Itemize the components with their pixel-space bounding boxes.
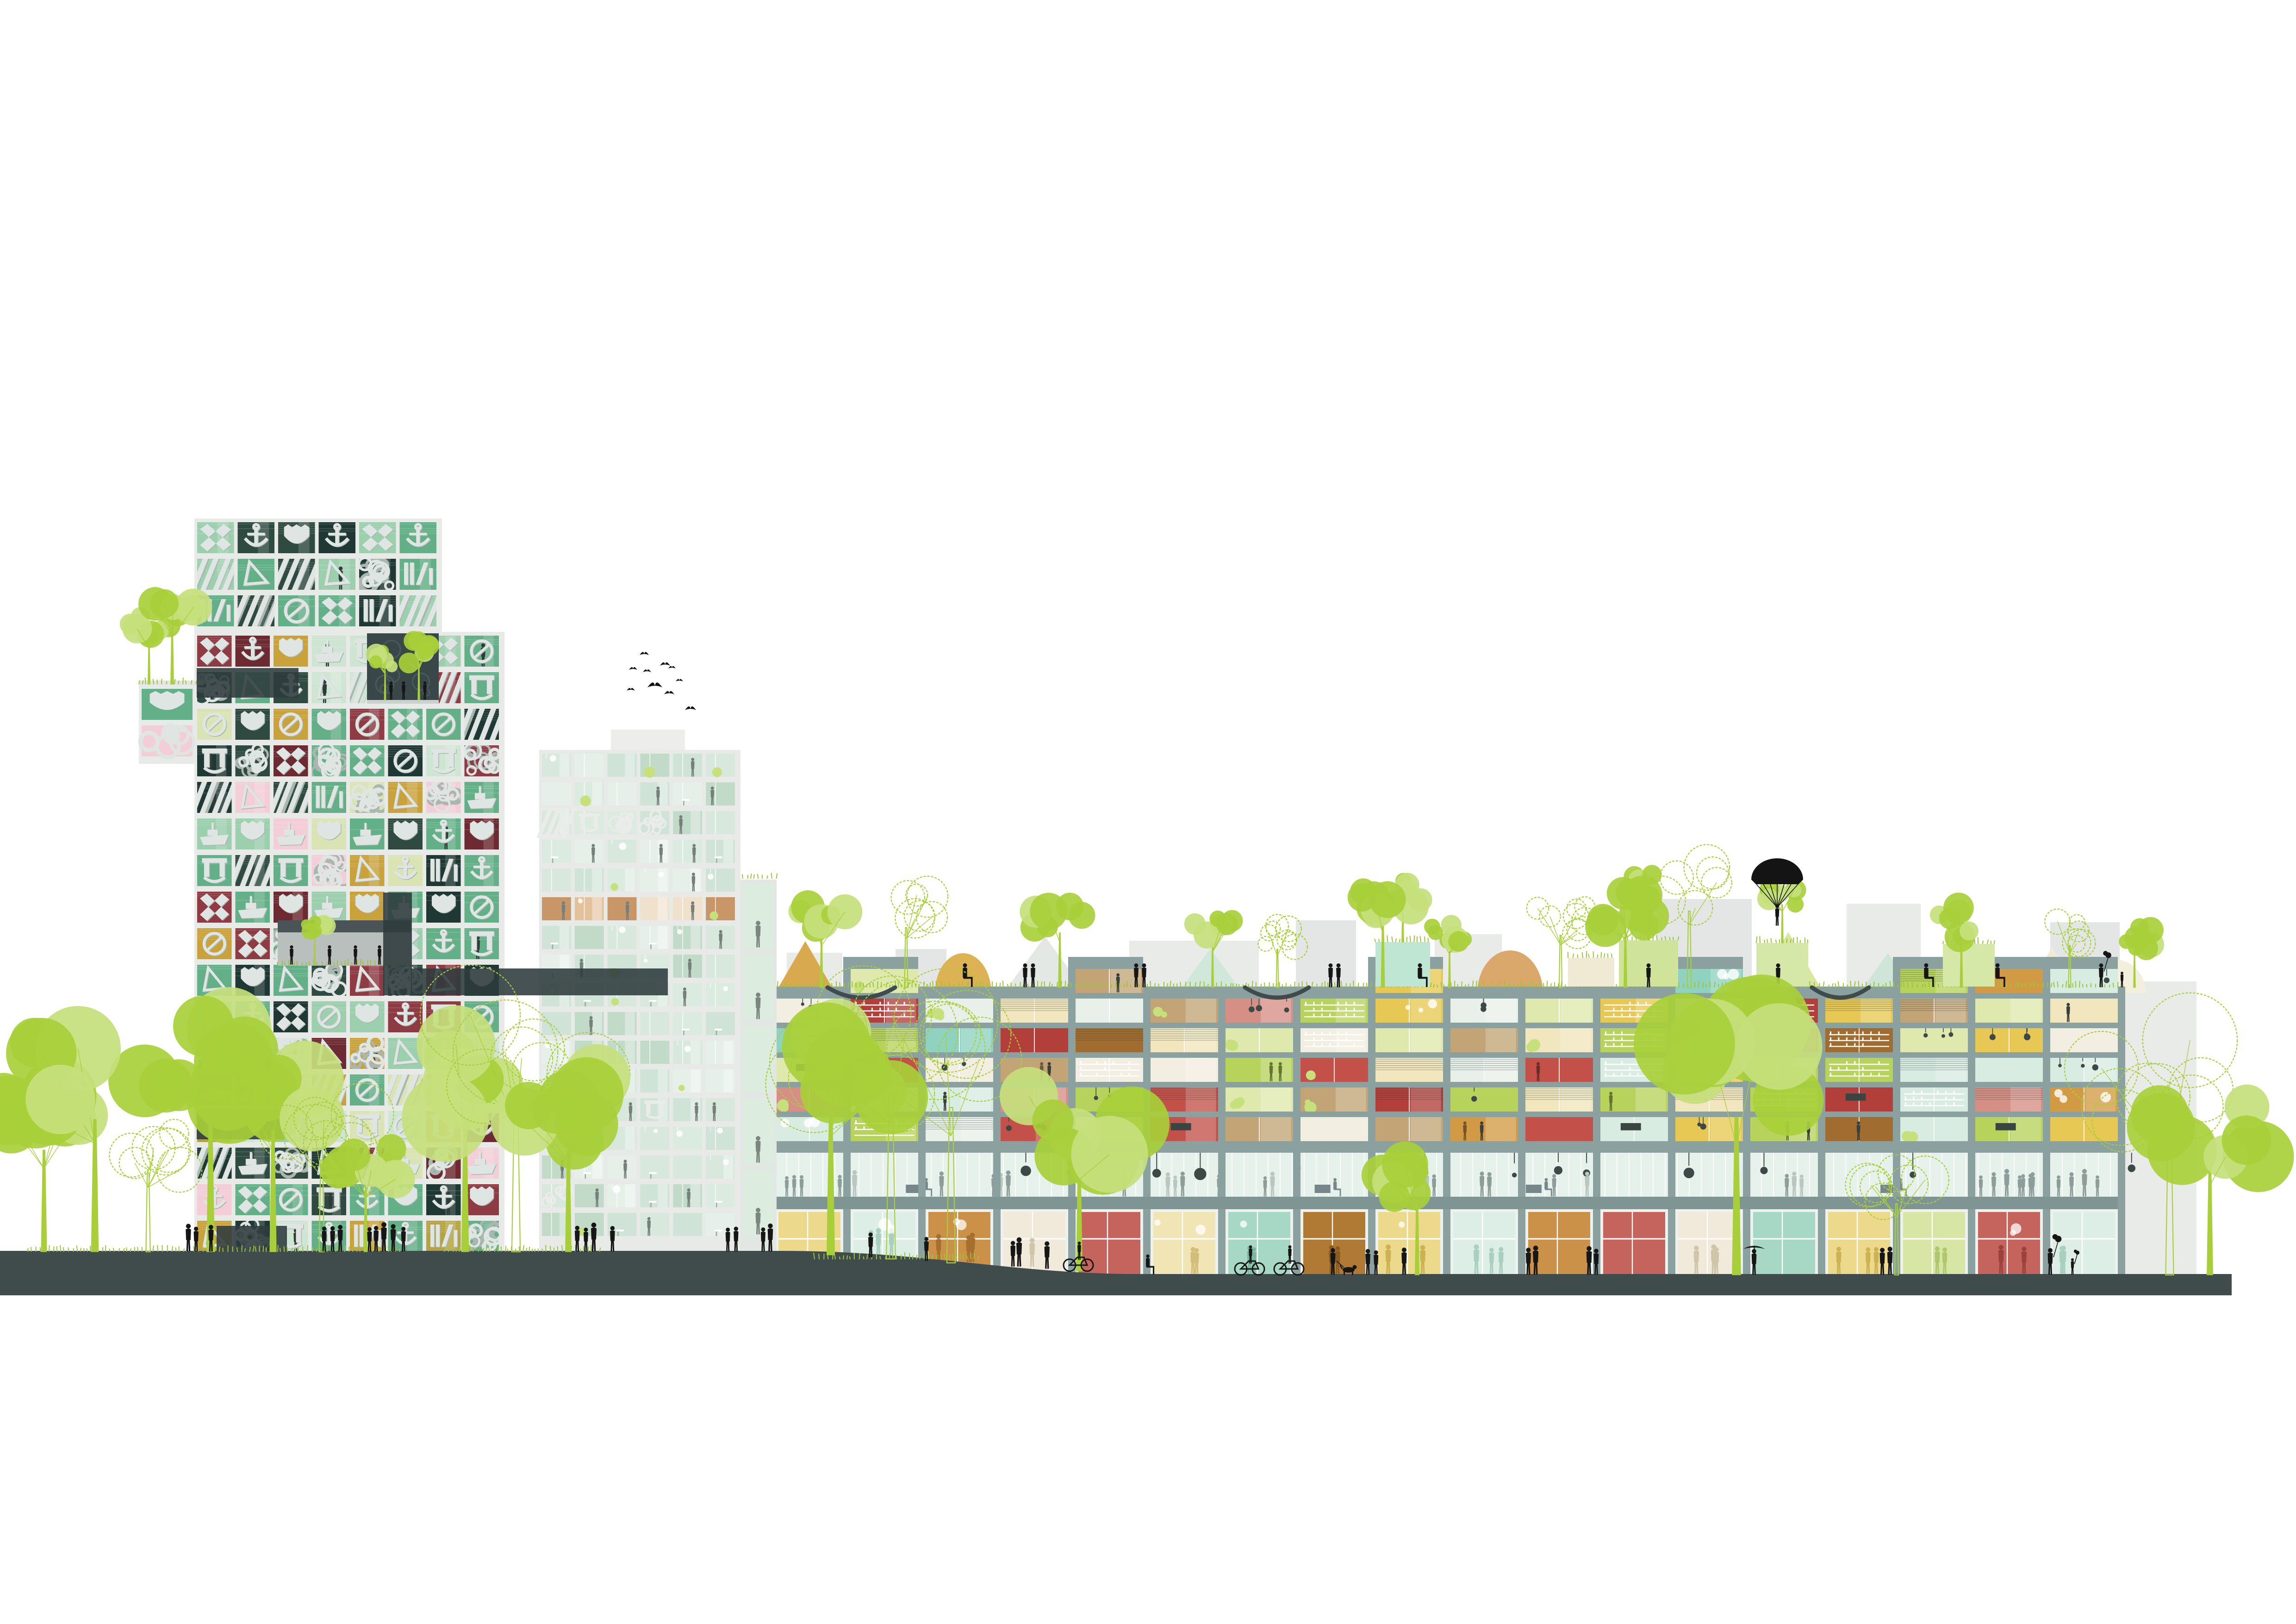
- tower-facade-cell: [274, 1148, 311, 1179]
- tower-facade-cell: [350, 1036, 386, 1071]
- bird-icon: [685, 706, 696, 710]
- tower-facade-cell: [278, 595, 315, 626]
- tower-facade-cell: [312, 636, 347, 667]
- tower-facade-cell: [197, 709, 232, 740]
- tower-facade-cell: [312, 818, 347, 849]
- bird-icon: [643, 669, 651, 672]
- tower-facade-cell: [312, 782, 347, 813]
- tower-dark-terrace-band: [411, 968, 668, 995]
- tower-facade-cell: [388, 745, 423, 776]
- tower-facade-cell: [236, 1148, 270, 1179]
- low-rise-block: [768, 957, 2135, 1282]
- bird-icon: [668, 666, 676, 668]
- bird-icon: [627, 688, 635, 691]
- tower-facade-cell: [388, 818, 423, 849]
- tower-facade-cell: [236, 636, 270, 667]
- tower-facade-cell: [197, 1184, 232, 1215]
- tower-facade-cell: [274, 745, 308, 776]
- tower-facade-cell: [465, 672, 499, 703]
- tower-facade-cell: [236, 709, 270, 740]
- tower-facade-cell: [274, 818, 308, 849]
- tower-facade-cell: [312, 853, 351, 888]
- tower-facade-cell: [426, 745, 461, 776]
- tower-facade-cell: [465, 818, 499, 849]
- tower-facade-cell: [350, 892, 385, 923]
- tower-facade-cell: [465, 892, 499, 923]
- tower-facade-cell: [426, 928, 461, 959]
- tower-facade-cell: [319, 522, 356, 553]
- tower-facade-cell: [236, 1184, 270, 1215]
- tower-facade-cell: [350, 709, 385, 740]
- tower-facade-cell: [312, 743, 349, 779]
- tower-facade-cell: [359, 595, 396, 626]
- tower-facade-cell: [197, 928, 232, 959]
- bird-icon: [664, 691, 674, 694]
- rooftop-plant-room: [611, 730, 685, 751]
- tower-facade-cell: [465, 855, 499, 886]
- bird-icon: [660, 662, 670, 666]
- tower-facade-cell: [465, 1184, 499, 1215]
- bird-icon: [640, 652, 649, 655]
- tower-facade-cell: [236, 928, 270, 959]
- tower-facade-cell: [465, 743, 499, 776]
- tower-facade-cell: [350, 1001, 385, 1032]
- tower-facade-cell: [236, 744, 270, 777]
- tower-facade-cell: [319, 559, 356, 590]
- tower-facade-cell: [274, 892, 308, 923]
- tower-facade-cell: [350, 782, 387, 817]
- tower-facade-cell: [278, 522, 315, 553]
- tower-facade-cell: [465, 782, 499, 813]
- tower-facade-cell: [238, 522, 275, 553]
- tower-dark-terrace-band: [197, 668, 299, 698]
- tower-facade-cell: [197, 522, 234, 553]
- tower-facade-cell: [350, 1074, 385, 1106]
- tower-facade-cell: [197, 636, 232, 667]
- tower-facade-cell: [388, 1001, 423, 1032]
- tower-facade-cell: [274, 636, 308, 667]
- tower-dark-terrace-band: [383, 893, 412, 995]
- tower-facade-cell: [236, 818, 270, 849]
- tower-facade-cell: [425, 779, 462, 813]
- tower-facade-cell: [388, 782, 423, 813]
- tower-facade-cell: [238, 559, 275, 590]
- tower-facade-cell: [350, 1111, 385, 1142]
- tower-facade-cell: [312, 709, 347, 740]
- tower-facade-cell: [426, 892, 461, 923]
- bird-icon: [676, 679, 683, 681]
- tower-facade-cell: [274, 1184, 308, 1215]
- tower-facade-cell: [312, 1184, 347, 1215]
- tower-facade-cell: [465, 636, 499, 667]
- rooftop-planter-box: [1568, 958, 1614, 987]
- tower-facade-cell: [274, 1001, 308, 1032]
- tower-facade-cell: [426, 818, 461, 849]
- tower-facade-cell: [197, 892, 232, 923]
- tower-facade-cell: [197, 818, 232, 849]
- bird-icon: [647, 682, 662, 687]
- tower-facade-cell: [312, 672, 347, 703]
- tower-facade-cell: [388, 709, 423, 740]
- tower-facade-cell: [350, 745, 385, 776]
- tower-facade-cell: [426, 1221, 461, 1252]
- tower-facade-cell: [426, 1184, 461, 1215]
- tower-facade-cell: [197, 855, 232, 886]
- tower-facade-cell: [356, 558, 396, 593]
- tower-facade-cell: [312, 962, 347, 996]
- tower-facade-cell: [274, 709, 308, 740]
- tower-facade-cell: [426, 855, 461, 886]
- tower-facade-cell: [359, 522, 396, 553]
- tower-facade-cell: [236, 782, 270, 813]
- architectural-elevation-illustration: [0, 0, 2296, 1624]
- tower-facade-cell: [350, 965, 385, 996]
- bird-icon: [629, 667, 637, 670]
- tower-facade-cell: [319, 595, 356, 626]
- tower-facade-cell: [274, 965, 308, 996]
- tower-facade-cell: [465, 928, 499, 959]
- tower-facade-cell: [274, 855, 308, 886]
- tower-facade-cell: [400, 522, 437, 553]
- tower-facade-cell: [197, 745, 232, 776]
- tower-facade-cell: [350, 818, 385, 849]
- tree: [1757, 879, 1806, 943]
- tower-facade-cell: [350, 855, 385, 886]
- tower-facade-cell: [312, 1001, 347, 1032]
- tower-facade-cell: [388, 855, 423, 886]
- tower-facade-cell: [236, 892, 270, 923]
- background-building-volume: [1296, 920, 1356, 994]
- tower-facade-cell: [426, 709, 461, 740]
- rooftop-planter-box: [1943, 944, 1995, 987]
- bird-flock: [627, 652, 696, 710]
- elevation-drawing-canvas: [0, 0, 2296, 1624]
- tower-facade-cell: [400, 559, 437, 590]
